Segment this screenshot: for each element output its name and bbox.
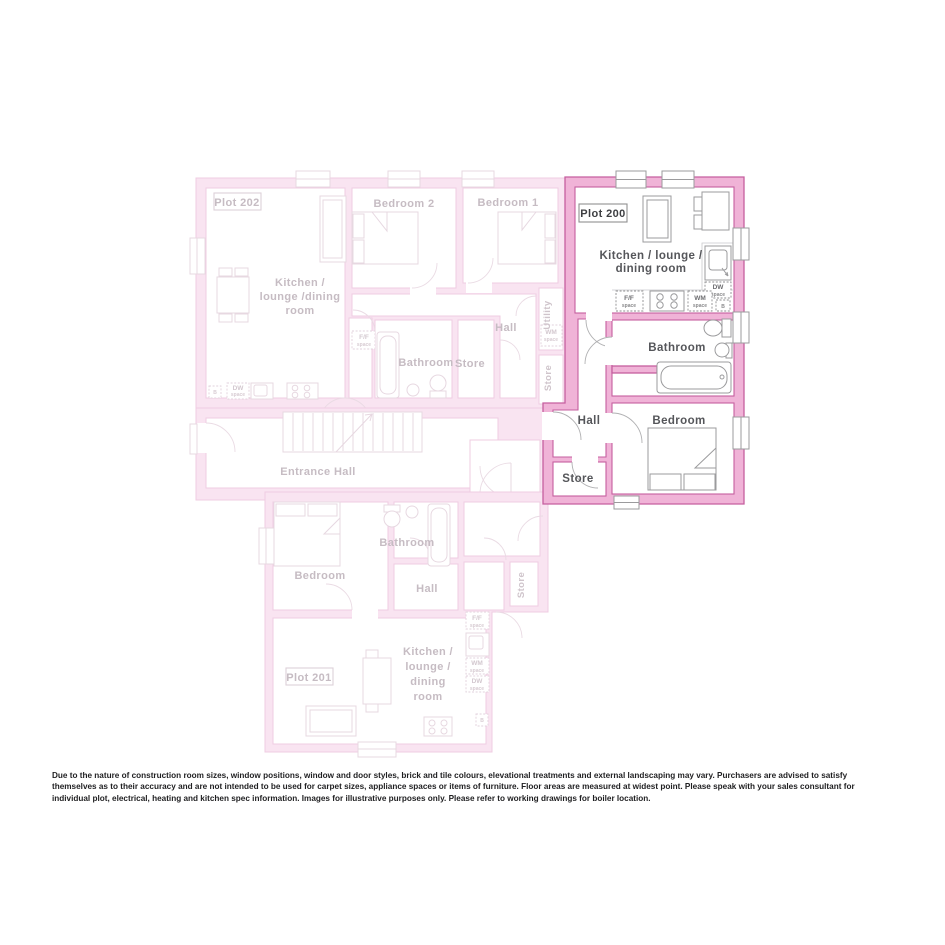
- plot201-corridor2: [464, 562, 504, 610]
- svg-text:WM: WM: [694, 295, 706, 302]
- plot200-store-label: Store: [562, 473, 593, 485]
- svg-text:Plot 200: Plot 200: [580, 208, 625, 220]
- plot200-bathroom-door-gap: [605, 337, 614, 365]
- plot200-bath: [657, 362, 731, 393]
- svg-text:space: space: [470, 668, 484, 674]
- front-door-gap: [197, 423, 207, 453]
- svg-text:F/F: F/F: [624, 295, 634, 302]
- plot202-bath: [377, 332, 399, 398]
- plot201-hob: [424, 717, 452, 736]
- svg-text:B: B: [213, 390, 217, 396]
- plot200-bedroom-label: Bedroom: [652, 415, 705, 427]
- plot200-bathroom-label: Bathroom: [648, 342, 706, 354]
- plot202-store-label: Store: [455, 358, 485, 370]
- plot202-plot-label[interactable]: Plot 202: [214, 193, 261, 210]
- svg-text:space: space: [470, 686, 484, 692]
- plot200-hall-label: Hall: [578, 415, 601, 427]
- svg-text:DW: DW: [233, 385, 245, 392]
- svg-text:B: B: [480, 718, 484, 724]
- plot200-kitchen-label-2: dining room: [616, 263, 687, 275]
- plot200-sink: [705, 246, 731, 280]
- plot201-kitchen-label-3: dining: [410, 676, 445, 688]
- svg-text:F/F: F/F: [472, 615, 482, 622]
- svg-text:B: B: [721, 304, 725, 310]
- plot200-sofa: [643, 196, 671, 242]
- plot200-bed: [648, 428, 716, 490]
- plot201-plot-label[interactable]: Plot 201: [286, 668, 333, 685]
- plot202-kitchen-label-2: lounge /dining: [260, 291, 341, 303]
- plot202-kitchen-label-1: Kitchen /: [275, 277, 325, 289]
- plot200-hob: [650, 291, 684, 311]
- svg-text:WM: WM: [471, 660, 483, 667]
- plot-202: B DW space F/F space WM space: [190, 171, 570, 424]
- plot201-toilet: [384, 505, 400, 527]
- plot202-kitchen-label-3: room: [285, 305, 314, 317]
- svg-text:space: space: [231, 392, 245, 398]
- plot202-hob: [287, 383, 318, 399]
- plot201-kitchen-label-2: lounge /: [405, 661, 450, 673]
- svg-text:space: space: [544, 337, 558, 343]
- plot202-hall-label: Hall: [495, 322, 517, 334]
- plot201-bedroom-door-gap: [352, 608, 378, 620]
- plot201-bedroom-label: Bedroom: [294, 570, 345, 582]
- plot202-bathroom-label: Bathroom: [398, 357, 453, 369]
- plot202-store2-label: Store: [543, 365, 554, 391]
- plot201-basin: [406, 506, 418, 518]
- plot200-entry-door-gap: [542, 412, 554, 440]
- plot201-kitchen-label-4: room: [413, 691, 442, 703]
- plot200-boiler: B: [716, 300, 730, 311]
- plot200-dining-table: [694, 192, 729, 230]
- plot200-bath-alcove-wall: [612, 366, 657, 373]
- plot202-ff-nook: [349, 318, 372, 398]
- plot202-sofa: [320, 196, 346, 262]
- plot200-kitchen-door-gap: [586, 312, 612, 321]
- svg-text:space: space: [622, 303, 636, 309]
- plot201-bath: [428, 504, 450, 566]
- floorplan-page: B DW space F/F space WM space: [0, 0, 945, 945]
- svg-text:F/F: F/F: [359, 334, 369, 341]
- entrance-hall-label: Entrance Hall: [280, 466, 356, 478]
- plot202-ff-space: F/F space: [352, 331, 375, 349]
- plot200-toilet: [704, 319, 731, 337]
- svg-text:space: space: [357, 342, 371, 348]
- plot201-bathroom-label: Bathroom: [379, 537, 434, 549]
- plot201-kitchen-label-1: Kitchen /: [403, 646, 453, 658]
- plot202-utility-label: Utility: [542, 300, 553, 330]
- plot-201: F/F space WM space DW space B P: [259, 492, 548, 757]
- plot201-store-label: Store: [516, 572, 527, 598]
- svg-text:Plot 202: Plot 202: [214, 197, 259, 209]
- svg-text:space: space: [711, 292, 725, 298]
- plot202-bedroom2-label: Bedroom 2: [373, 198, 434, 210]
- plot201-kitchen-door-arc: [496, 612, 522, 638]
- svg-text:DW: DW: [713, 284, 725, 291]
- entrance-window: [190, 424, 197, 454]
- svg-text:space: space: [693, 303, 707, 309]
- plot200-ff-space: F/F space: [616, 291, 643, 311]
- svg-text:space: space: [470, 623, 484, 629]
- plot200-basin: [715, 343, 732, 358]
- plot201-sofa: [306, 706, 356, 736]
- plot201-hall-label: Hall: [416, 583, 438, 595]
- plot202-bedroom1-label: Bedroom 1: [477, 197, 538, 209]
- plot201-dining-table: [363, 650, 391, 712]
- plot201-bed: [274, 502, 340, 566]
- svg-text:Plot 201: Plot 201: [286, 672, 331, 684]
- svg-text:DW: DW: [472, 678, 484, 685]
- disclaimer-text: Due to the nature of construction room s…: [52, 770, 892, 804]
- plot202-toilet: [430, 375, 446, 398]
- plot202-bedroom1-bed: [498, 212, 556, 264]
- plot202-bedroom2-bed: [352, 212, 418, 264]
- stairs: [283, 412, 422, 452]
- plot200-store-door-gap: [572, 456, 598, 464]
- plot202-basin: [407, 384, 419, 396]
- plot200-plot-label[interactable]: Plot 200: [579, 204, 627, 222]
- entrance-hall: Entrance Hall: [190, 408, 548, 500]
- plot200-wm-space: WM space: [688, 291, 712, 311]
- plot200-kitchen-label-1: Kitchen / lounge /: [599, 250, 702, 262]
- plot-200-highlighted: DW space B F/F space WM space: [542, 171, 749, 509]
- plot200-bedroom-door-gap: [605, 413, 614, 443]
